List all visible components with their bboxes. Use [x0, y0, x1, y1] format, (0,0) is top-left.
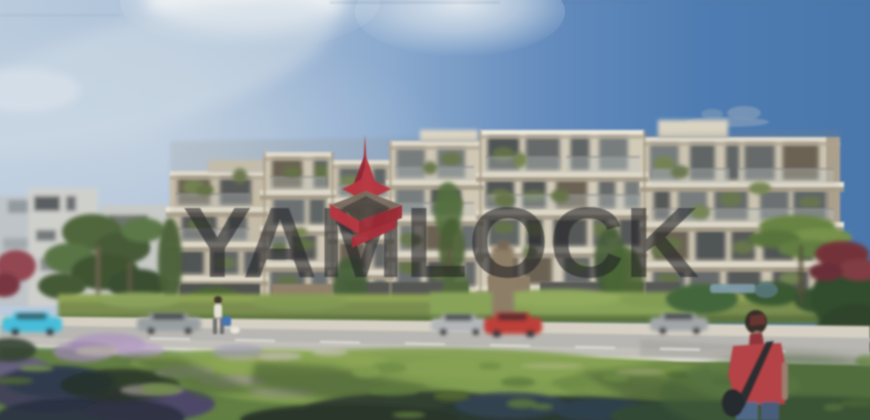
svg-text:YAMLOCK: YAMLOCK	[183, 187, 700, 299]
